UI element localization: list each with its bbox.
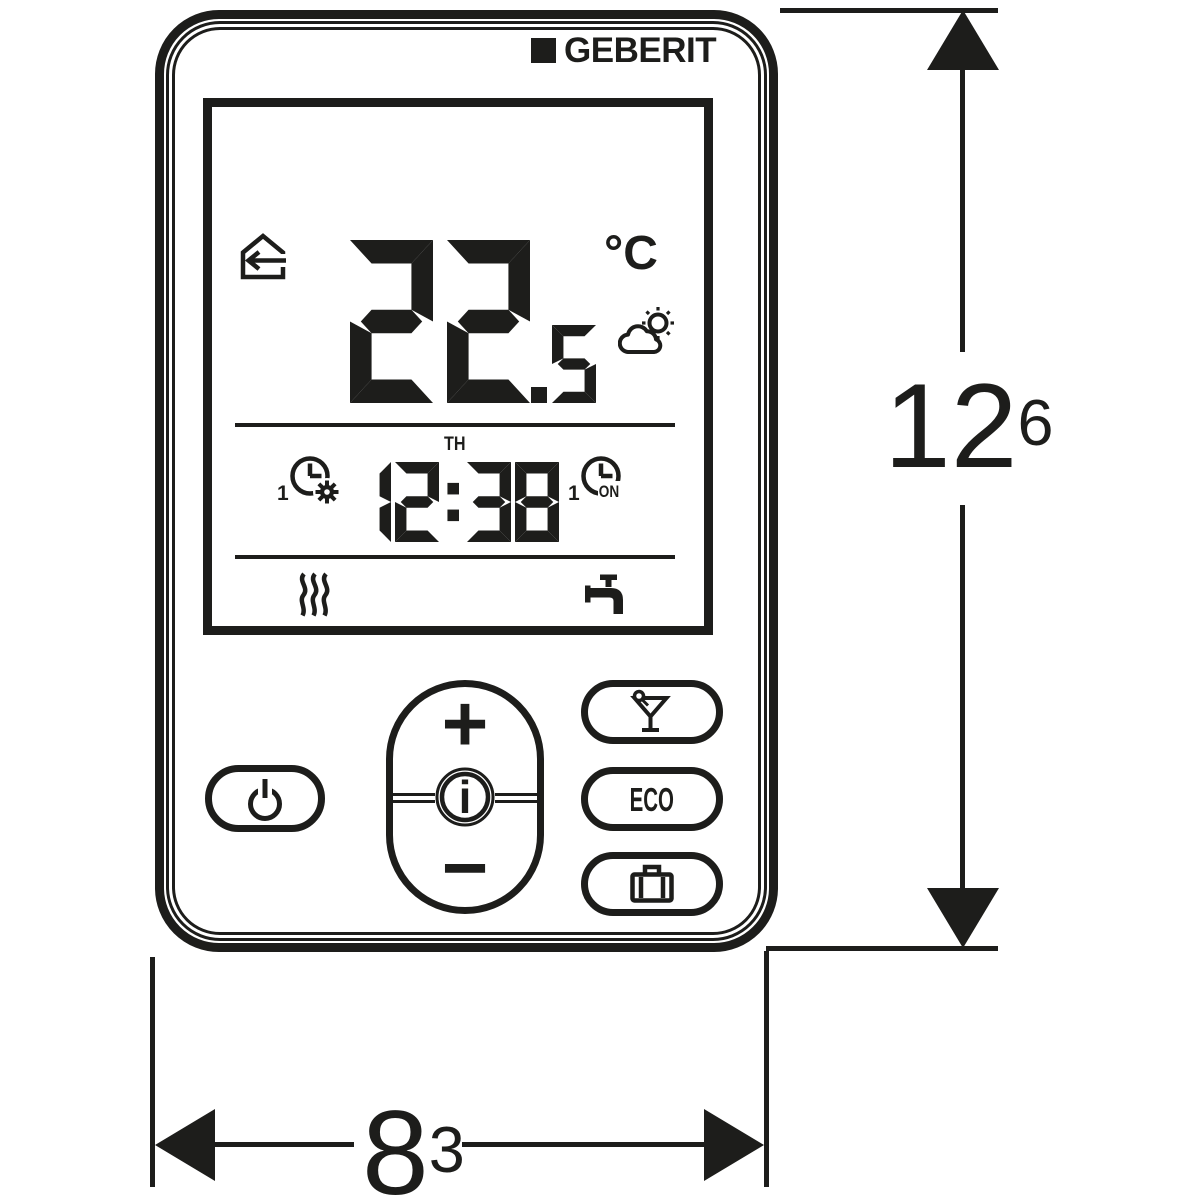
display-divider-bottom [235, 555, 675, 559]
technical-drawing-canvas: GEBERIT °C 1 [0, 0, 1200, 1200]
width-extension-line-right [764, 951, 769, 1187]
power-button[interactable] [205, 765, 325, 832]
clock-gear-icon [288, 455, 352, 513]
width-arrow-right [704, 1109, 764, 1181]
rocker-seam-left-bottom [393, 800, 435, 803]
height-extension-line-bottom [766, 946, 998, 951]
height-arrow-down [927, 888, 999, 948]
holiday-button[interactable] [581, 852, 723, 916]
width-dimension-label: 83 [362, 1093, 465, 1200]
width-value: 8 [362, 1086, 429, 1200]
height-arrow-up [927, 10, 999, 70]
home-arrow-icon [236, 232, 290, 282]
temperature-decimal-point [531, 387, 547, 403]
briefcase-icon [629, 864, 675, 904]
rocker-seam-right-bottom [495, 800, 537, 803]
brand-logo-square-icon [531, 38, 556, 63]
program-on-number: 1 [568, 483, 580, 504]
heating-active-icon [296, 572, 334, 618]
temperature-unit: °C [604, 230, 658, 278]
height-value: 12 [884, 359, 1017, 493]
height-dimension-label: 126 [884, 366, 1054, 486]
brand-logo-text: GEBERIT [564, 38, 716, 63]
width-sup: 3 [429, 1113, 465, 1186]
brand-logo: GEBERIT [531, 38, 716, 63]
minus-button[interactable]: − [430, 828, 500, 908]
program-on-label: ON [598, 481, 620, 502]
height-dim-line-upper [960, 66, 965, 352]
temperature-decimal-digit [552, 325, 596, 403]
height-dim-line-lower [960, 505, 965, 889]
gear-sub-icon [313, 478, 341, 506]
program-comfort-number: 1 [277, 483, 289, 504]
eco-button-label: ECO [630, 783, 674, 816]
rocker-seam-right-top [495, 793, 537, 796]
display-divider-top [235, 423, 675, 427]
cocktail-icon [629, 689, 675, 735]
info-icon: i [435, 774, 495, 820]
day-label: TH [444, 435, 466, 454]
info-button[interactable]: i [435, 767, 495, 827]
width-dim-line-right [462, 1142, 704, 1147]
temperature-display [350, 240, 544, 403]
time-display [347, 462, 563, 542]
water-tap-icon [583, 574, 631, 615]
eco-button[interactable]: ECO [581, 767, 723, 831]
width-arrow-left [155, 1109, 215, 1181]
sun-behind-cloud-icon [618, 306, 674, 354]
plus-button[interactable]: + [430, 684, 500, 764]
rocker-seam-left-top [393, 793, 435, 796]
height-sup: 6 [1017, 386, 1053, 459]
width-dim-line-left [213, 1142, 354, 1147]
power-icon [245, 774, 285, 824]
party-button[interactable] [581, 680, 723, 744]
